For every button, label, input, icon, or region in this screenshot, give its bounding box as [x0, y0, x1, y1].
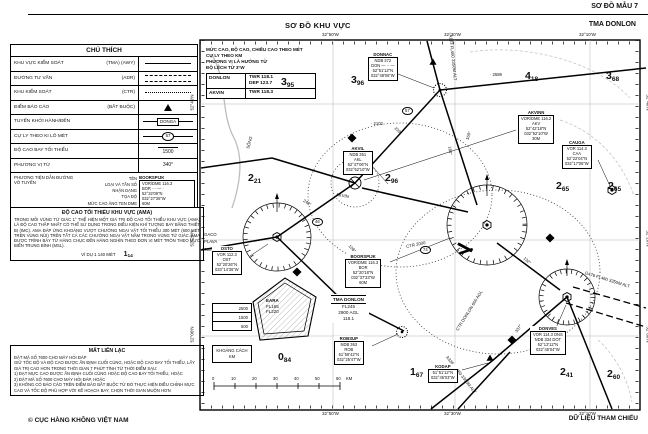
river-terrain: [212, 50, 634, 402]
chart-canvas: [0, 0, 648, 434]
airway-lines: [201, 41, 646, 409]
vor-symbols: [273, 186, 616, 302]
scale-bar: [214, 382, 340, 390]
restricted-area: [253, 278, 316, 340]
area-chart-page: SƠ ĐỒ MẪU 7 SƠ ĐỒ KHU VỰC TMA DONLON CHÚ…: [0, 0, 648, 434]
compass-rose-boorspijk: [447, 174, 527, 265]
ctr-boundaries: [308, 123, 600, 354]
waypoint-diamonds: [292, 133, 554, 344]
ndb-symbols: [397, 84, 447, 338]
chart-frame: [200, 40, 640, 410]
graticule: [200, 40, 640, 410]
adr-routes: [566, 287, 646, 327]
